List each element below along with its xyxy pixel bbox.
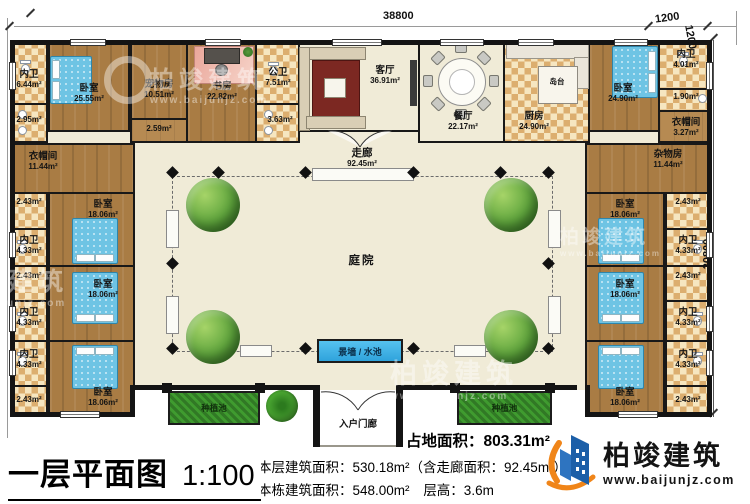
toilet-icon	[17, 352, 28, 366]
bed	[72, 272, 118, 324]
logo-glyph-icon	[543, 429, 599, 491]
dining-chair	[455, 109, 467, 119]
window	[332, 39, 382, 46]
room-cloak-left	[10, 143, 135, 194]
coffee-table	[324, 78, 346, 98]
pier	[545, 383, 555, 393]
window	[706, 306, 713, 332]
pillow	[648, 51, 656, 71]
room-cloak-top-right	[658, 110, 712, 143]
bench	[454, 345, 486, 357]
stat-building-area: 本栋建筑面积：548.00m² 层高：3.6m	[258, 479, 494, 499]
dining-chair	[423, 75, 433, 87]
drawing-title: 一层平面图 1:100	[8, 449, 261, 501]
toilet-icon	[678, 52, 689, 66]
sofa	[306, 47, 366, 60]
pier	[450, 383, 460, 393]
pillow	[95, 254, 114, 262]
porch-wall	[313, 385, 320, 447]
room-r2-closet	[665, 265, 712, 302]
window	[9, 232, 16, 258]
room-r2-bath	[665, 300, 712, 342]
pier	[162, 383, 172, 393]
sheet-edge-line	[7, 18, 8, 438]
toilet-bowl	[269, 66, 278, 76]
pillow	[52, 81, 60, 100]
stat-land-area: 占地面积：803.31m²	[406, 429, 550, 451]
pillow	[602, 347, 621, 355]
window	[706, 350, 713, 376]
sink-icon	[698, 94, 707, 103]
toilet-bowl	[18, 244, 27, 254]
plan-scale: 1:100	[182, 460, 255, 493]
tree	[484, 178, 538, 232]
pillow	[621, 347, 640, 355]
entrance-double-door	[320, 391, 396, 411]
wall-segment	[585, 385, 590, 417]
toilet-icon	[692, 312, 703, 326]
window	[518, 39, 554, 46]
room-pet	[130, 40, 188, 120]
room-passage-259	[130, 118, 188, 143]
bed	[598, 272, 644, 324]
toilet-bowl	[693, 356, 702, 366]
window	[440, 39, 484, 46]
stat-floor-area: 本层建筑面积：530.18m²（含走廊面积：92.45m²）	[258, 456, 567, 476]
pillow	[95, 314, 114, 322]
desk	[204, 48, 240, 64]
room-public-bath-sub	[255, 103, 300, 143]
pillow	[52, 60, 60, 79]
toilet-bowl	[693, 244, 702, 254]
pillow	[621, 314, 640, 322]
dimension-offset-top: 1200	[654, 10, 680, 25]
toilet-bowl	[693, 316, 702, 326]
toilet-icon	[20, 60, 31, 74]
room-r3-bath	[665, 340, 712, 387]
screen-bench	[312, 168, 414, 181]
bench	[548, 296, 561, 334]
living-room-double-door	[327, 130, 393, 148]
window	[9, 350, 16, 376]
toilet-icon	[17, 240, 28, 254]
palm-tree	[266, 390, 298, 422]
plan-title: 一层平面图	[8, 449, 168, 494]
bench	[548, 210, 561, 248]
bench	[166, 296, 179, 334]
company-logo: 柏竣建筑 www.baijunjz.com	[543, 429, 735, 491]
sink-icon	[18, 126, 27, 135]
dining-table-center	[449, 69, 475, 95]
window	[706, 232, 713, 258]
bed	[72, 218, 118, 264]
window	[706, 62, 713, 90]
stat-story-height: 层高：3.6m	[423, 483, 494, 498]
bed	[72, 345, 118, 389]
bed	[598, 345, 644, 389]
pillow	[602, 254, 621, 262]
sofa	[306, 116, 366, 129]
dimension-line	[736, 11, 737, 45]
pillow	[95, 347, 114, 355]
toilet-bowl	[21, 64, 30, 74]
tree	[186, 310, 240, 364]
window	[614, 39, 648, 46]
stat-total-area: 本栋建筑面积：548.00m²	[258, 483, 410, 498]
dimension-line	[14, 26, 736, 27]
floor-plan-sheet: 38800 1200 1200 20800	[0, 0, 750, 504]
toilet-bowl	[679, 56, 688, 66]
pillow	[602, 314, 621, 322]
pillow	[621, 254, 640, 262]
pillow	[76, 347, 95, 355]
pillow	[76, 314, 95, 322]
planter-left: 种植池	[168, 391, 260, 425]
toilet-bowl	[18, 316, 27, 326]
company-website: www.baijunjz.com	[603, 473, 735, 487]
window	[60, 411, 100, 418]
toilet-icon	[268, 62, 279, 76]
sink-icon	[264, 126, 273, 135]
room-l2-closet	[10, 265, 48, 302]
window	[70, 39, 106, 46]
plant	[243, 47, 253, 57]
sink-icon	[264, 110, 273, 119]
company-name: 柏竣建筑	[603, 434, 735, 473]
dining-chair	[489, 75, 499, 87]
bed	[598, 218, 644, 264]
bed	[612, 46, 658, 98]
pillow	[76, 254, 95, 262]
toilet-icon	[692, 352, 703, 366]
room-storage-right	[585, 143, 712, 194]
tree	[186, 178, 240, 232]
window	[9, 306, 16, 332]
window	[618, 411, 658, 418]
pier	[255, 383, 265, 393]
toilet-icon	[692, 240, 703, 254]
planter-right: 种植池	[457, 391, 552, 425]
dimension-line	[713, 40, 714, 417]
toilet-bowl	[18, 356, 27, 366]
desk-chair	[215, 64, 228, 76]
bench	[166, 210, 179, 248]
tree	[484, 310, 538, 364]
window	[205, 39, 241, 46]
sink-icon	[18, 110, 27, 119]
room-bath-top-left-sub	[10, 103, 48, 143]
dimension-tick	[26, 8, 35, 17]
dimension-overall-width: 38800	[383, 10, 414, 22]
window	[9, 62, 16, 90]
room-l1-closet	[10, 192, 48, 230]
tv-cabinet	[410, 60, 417, 106]
toilet-icon	[17, 312, 28, 326]
pillow	[648, 73, 656, 93]
bench	[240, 345, 272, 357]
room-r1-closet	[665, 192, 712, 230]
kitchen-island	[538, 66, 578, 104]
water-feature: 景墙 / 水池	[317, 339, 403, 363]
porch-wall	[396, 385, 403, 447]
bed	[50, 56, 92, 104]
